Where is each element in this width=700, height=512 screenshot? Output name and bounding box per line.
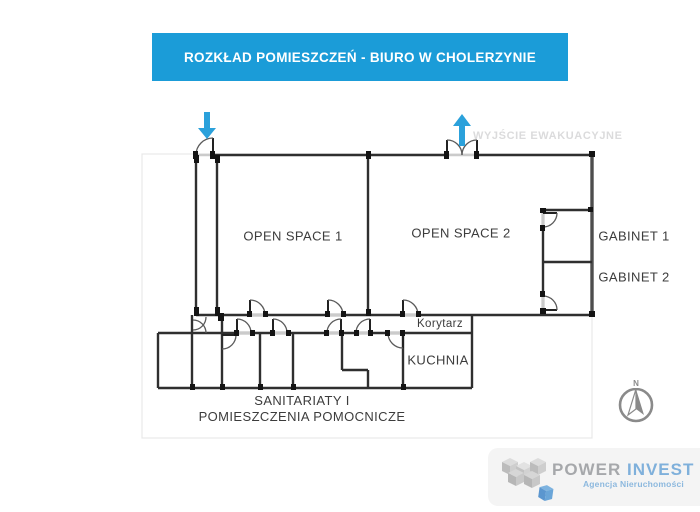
- room-label-sanitariaty: SANITARIATY I POMIESZCZENIA POMOCNICZE: [199, 393, 406, 425]
- walls: [158, 155, 592, 388]
- compass-north-label: N: [633, 379, 639, 388]
- arrows: [198, 112, 471, 146]
- screenshot-canvas: { "banner": { "title": "ROZKŁAD POMIESZC…: [0, 0, 700, 512]
- exit-arrow-icon: [453, 114, 471, 146]
- door-arcs: [193, 138, 557, 349]
- logo-word-invest: INVEST: [627, 460, 694, 479]
- exit-label: WYJŚCIE EWAKUACYJNE: [473, 130, 623, 142]
- room-label-kuchnia: KUCHNIA: [407, 353, 468, 368]
- door-swings: [193, 138, 557, 349]
- room-label-open-space-2: OPEN SPACE 2: [411, 226, 510, 241]
- sanitariaty-line-1: SANITARIATY I: [199, 393, 406, 409]
- sanitariaty-line-2: POMIESZCZENIA POMOCNICZE: [199, 409, 406, 425]
- room-label-korytarz: Korytarz: [417, 318, 463, 330]
- gray-cubes: [502, 458, 546, 488]
- room-label-open-space-1: OPEN SPACE 1: [243, 229, 342, 244]
- logo-wordmark: POWER INVEST: [552, 460, 686, 480]
- compass-icon: N: [620, 378, 652, 421]
- room-label-gabinet-1: GABINET 1: [598, 229, 669, 244]
- logo-word-power: POWER: [552, 460, 621, 479]
- door-openings: [196, 155, 543, 333]
- entrance-arrow-icon: [198, 112, 216, 139]
- room-label-gabinet-2: GABINET 2: [598, 270, 669, 285]
- floor-plan: N: [0, 0, 700, 512]
- wall-posts: [190, 151, 595, 390]
- logo-tagline: Agencja Nieruchomości: [552, 479, 684, 489]
